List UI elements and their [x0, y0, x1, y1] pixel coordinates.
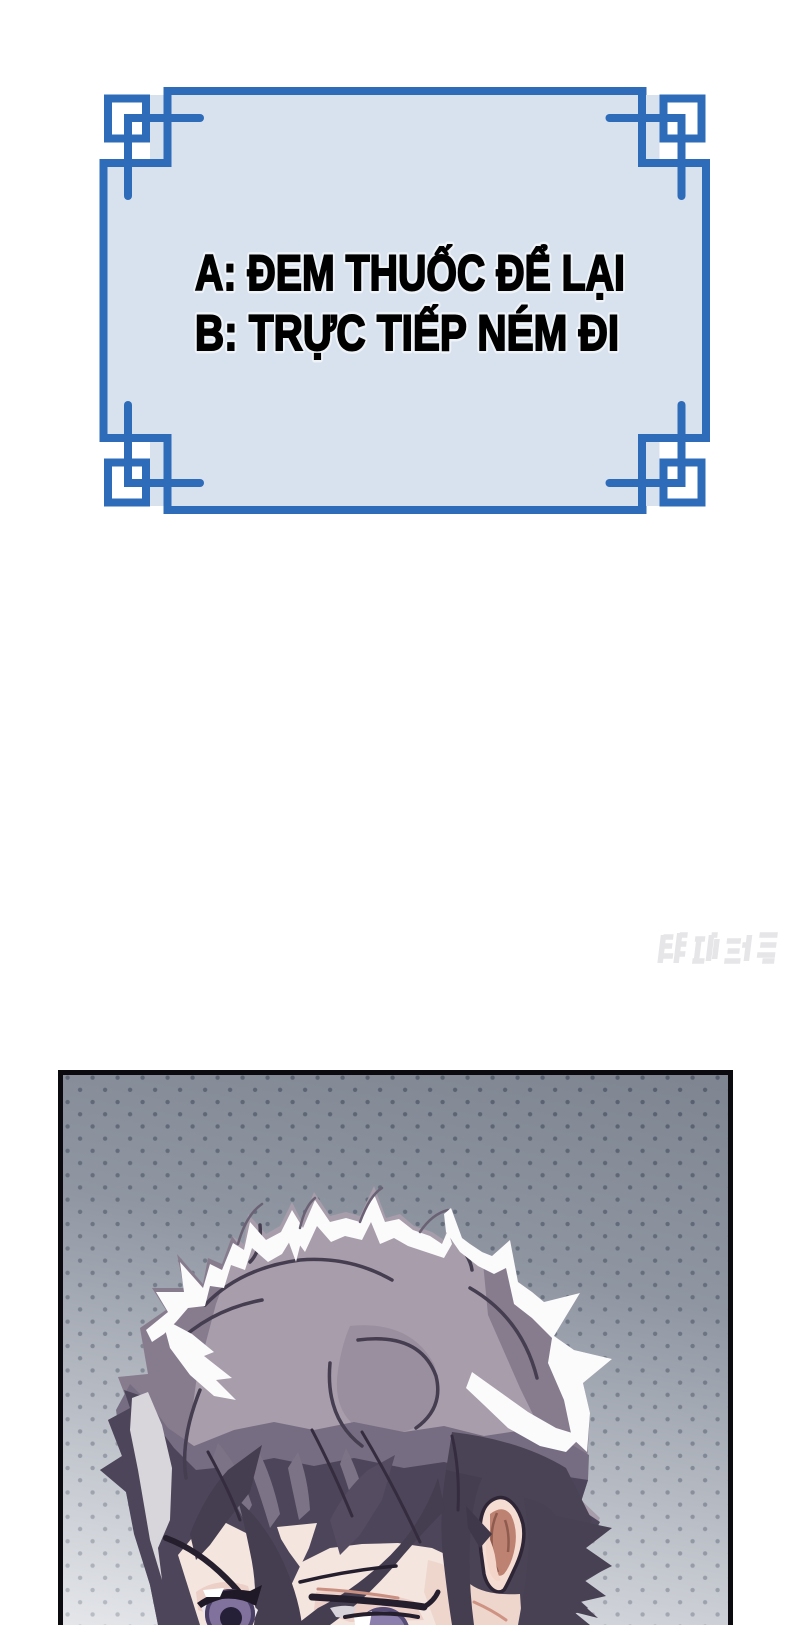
svg-text:B: TRỰC TIẾP NÉM ĐI: B: TRỰC TIẾP NÉM ĐI [195, 304, 619, 361]
svg-text:A: ĐEM THUỐC ĐỂ LẠI: A: ĐEM THUỐC ĐỂ LẠI [195, 244, 625, 301]
